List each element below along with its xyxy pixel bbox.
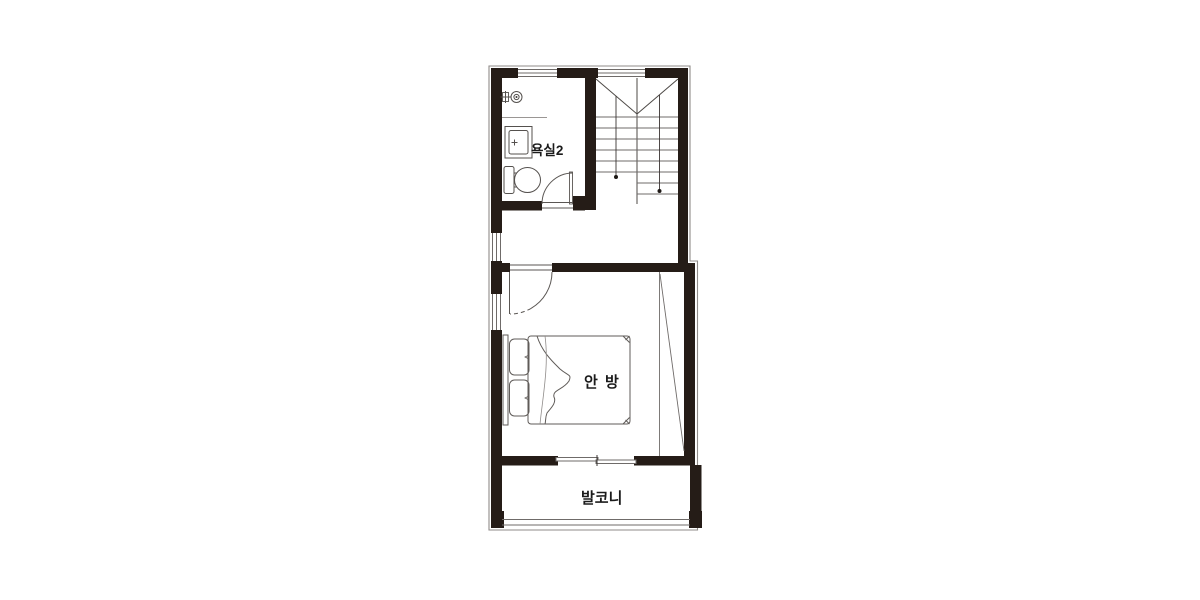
window-left-upper (491, 233, 502, 261)
window-left-lower (491, 294, 502, 330)
bathroom-door (542, 172, 573, 208)
toilet (504, 167, 541, 194)
bed-headboard (503, 335, 508, 425)
closet-diagonal-line (660, 274, 684, 451)
stair-dot-left (614, 175, 618, 179)
balcony-railing (502, 520, 690, 526)
staircase (596, 78, 678, 204)
bed-blanket-edge (537, 336, 570, 424)
stair-direction-lines (616, 95, 660, 191)
floorplan-canvas: 욕실2 안 방 발코니 (0, 0, 1200, 600)
window-top-bathroom (518, 68, 557, 78)
bed-pillow-top (510, 339, 530, 375)
balcony-sliding-door (556, 455, 636, 466)
bed-pillow-bottom (510, 380, 530, 416)
stair-dot-right (658, 189, 662, 193)
bedroom-door (510, 265, 553, 314)
label-balcony: 발코니 (581, 490, 622, 507)
label-bedroom: 안 방 (584, 373, 620, 391)
shower-valve-icon (501, 91, 523, 103)
floorplan-drawing: 욕실2 안 방 발코니 (0, 0, 1200, 600)
window-top-stairs (598, 68, 645, 78)
sink (505, 127, 532, 159)
bedroom-interior (503, 272, 684, 456)
label-bathroom: 욕실2 (531, 143, 563, 158)
